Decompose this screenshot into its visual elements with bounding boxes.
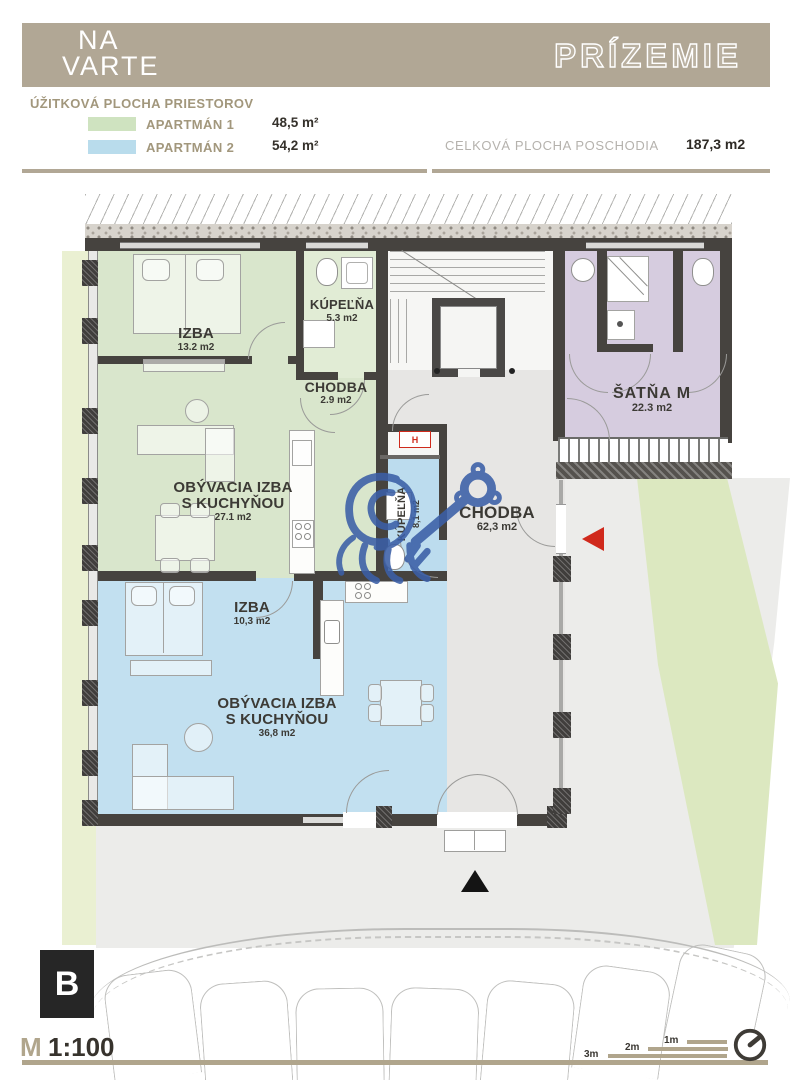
lion-key-watermark <box>320 450 515 600</box>
entry-marker-red-triangle <box>582 527 604 551</box>
logo: NA VARTE <box>78 27 160 79</box>
apartment1-label: APARTMÁN 1 <box>146 117 234 132</box>
entry-marker-black-triangle <box>461 870 489 892</box>
pillar-west-8 <box>82 750 98 776</box>
column-dot-2 <box>509 368 515 374</box>
pillar-east-2 <box>553 634 571 660</box>
chair-apt2-1 <box>368 684 382 702</box>
burner-2 <box>304 523 311 530</box>
pillow-4 <box>169 586 195 606</box>
scalebar-2m-line <box>648 1047 728 1051</box>
page-title: PRÍZEMIE <box>554 37 742 75</box>
total-area-value: 187,3 m2 <box>686 136 745 152</box>
parking-stall-4 <box>388 986 480 1080</box>
entrance-step-divider <box>474 830 475 850</box>
pillar-west-9 <box>82 800 98 826</box>
pillar-east-1 <box>553 556 571 582</box>
logo-line2: VARTE <box>62 53 160 79</box>
wall-satna-sub2 <box>673 251 683 352</box>
logo-line1: NA <box>78 27 160 53</box>
pillar-west-7 <box>82 680 98 706</box>
scale-value: 1:100 <box>48 1032 115 1063</box>
pillow-2 <box>196 259 224 281</box>
shower-tray-bathroom1 <box>346 262 368 284</box>
label-izba2: IZBA 10,3 m2 <box>212 600 292 628</box>
window-north-2 <box>306 242 368 249</box>
scale-prefix: M <box>20 1032 42 1063</box>
technical-room-label: H <box>412 435 419 445</box>
header-divider <box>22 169 770 173</box>
sink-satna <box>571 258 595 282</box>
kitchen-sink-apt2 <box>324 620 340 644</box>
dining-table-apt2 <box>380 680 422 726</box>
north-compass-icon <box>731 1026 769 1064</box>
window-north-1 <box>120 242 260 249</box>
kitchen-counter-apt2-v <box>320 600 344 696</box>
wall-east-outer <box>720 251 732 443</box>
pillar-west-1 <box>82 260 98 286</box>
stairs-side-flight <box>390 299 412 363</box>
chair-apt1-4 <box>190 558 210 573</box>
pillar-east-3 <box>553 712 571 738</box>
apartment2-swatch <box>88 140 136 154</box>
pillar-west-3 <box>82 408 98 434</box>
gravel-band <box>85 224 732 238</box>
floorplan-page: NA VARTE PRÍZEMIE ÚŽITKOVÁ PLOCHA PRIEST… <box>0 0 792 1080</box>
pillar-east-4 <box>553 788 571 814</box>
scalebar-2m-label: 2m <box>625 1042 639 1053</box>
label-obyvacia1: OBÝVACIA IZBA S KUCHYŇOU 27.1 m2 <box>152 480 314 524</box>
chair-apt2-4 <box>420 704 434 722</box>
pillar-west-5 <box>82 545 98 571</box>
elevator-cab <box>440 306 497 369</box>
lamp-circle-apt1 <box>185 399 209 423</box>
apartment2-label: APARTMÁN 2 <box>146 140 234 155</box>
hatch-band <box>85 194 732 225</box>
column-dot-1 <box>434 368 440 374</box>
label-izba1: IZBA 13.2 m2 <box>156 326 236 354</box>
label-chodba1: CHODBA 2.9 m2 <box>296 379 376 407</box>
kitchen-sink-apt1 <box>292 440 312 466</box>
entrance-step <box>444 830 506 852</box>
apartment1-swatch <box>88 117 136 131</box>
sofa-apt1-b <box>205 428 235 482</box>
pillow-3 <box>131 586 157 606</box>
wall-satna-sub3 <box>597 344 653 352</box>
pillar-west-6 <box>82 600 98 626</box>
header-divider-gap <box>427 169 432 173</box>
parking-stall-3 <box>295 987 385 1080</box>
scalebar-3m-line <box>608 1054 727 1058</box>
scalebar-3m-label: 3m <box>584 1049 598 1060</box>
door-gap-east-entrance <box>556 504 566 554</box>
wall-satna-west <box>553 251 565 441</box>
bed2-split-line <box>163 583 164 653</box>
chair-apt1-3 <box>160 558 180 573</box>
pillar-west-2 <box>82 318 98 344</box>
wall-satna-sub1 <box>597 251 607 352</box>
chair-apt2-3 <box>420 684 434 702</box>
sofa-apt2-b <box>132 776 234 810</box>
elevator-door <box>458 369 480 377</box>
apartment2-area: 54,2 m² <box>272 138 319 153</box>
total-area-label: CELKOVÁ PLOCHA POSCHODIA <box>445 138 659 153</box>
window-south <box>303 817 343 823</box>
section-marker: B <box>40 950 94 1018</box>
pillar-west-4 <box>82 478 98 504</box>
sideboard-apt1 <box>143 359 225 372</box>
washer-dot <box>617 321 623 327</box>
toilet-satna <box>692 258 714 286</box>
scalebar-1m-line <box>687 1040 727 1044</box>
sideboard-apt2 <box>130 660 212 676</box>
pillow-1 <box>142 259 170 281</box>
burner-1 <box>295 523 302 530</box>
header-bar: NA VARTE PRÍZEMIE <box>22 23 770 87</box>
label-obyvacia2: OBÝVACIA IZBA S KUCHYŇOU 36,8 m2 <box>196 696 358 740</box>
section-marker-letter: B <box>55 965 80 1004</box>
footer-baseline <box>22 1060 768 1065</box>
label-kupelna1: KÚPEĽŇA 5.3 m2 <box>302 297 382 325</box>
burner-4 <box>304 533 311 540</box>
toilet-bathroom1 <box>316 258 338 286</box>
apartment1-area: 48,5 m² <box>272 115 319 130</box>
bed-split-line <box>185 255 186 331</box>
label-satna: ŠATŇA M 22.3 m2 <box>592 386 712 414</box>
window-north-3 <box>586 242 704 249</box>
technical-room-badge: H <box>399 431 431 448</box>
chair-apt2-2 <box>368 704 382 722</box>
burner-3 <box>295 533 302 540</box>
legend-heading: ÚŽITKOVÁ PLOCHA PRIESTOROV <box>30 96 253 111</box>
scalebar-1m-label: 1m <box>664 1035 678 1046</box>
terrace-parapet <box>556 462 732 479</box>
